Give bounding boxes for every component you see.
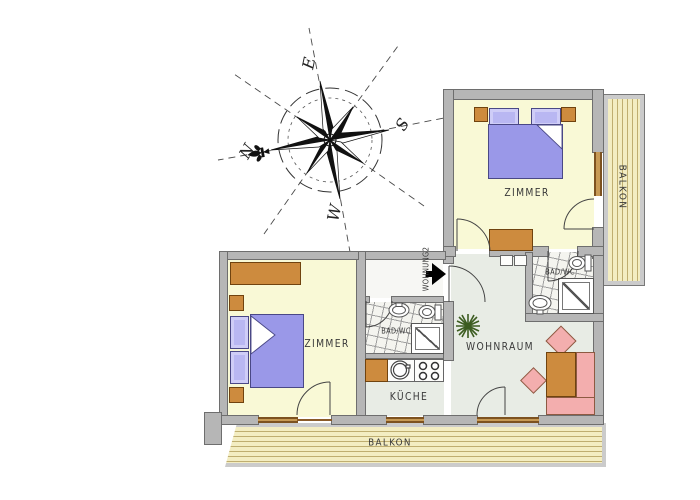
- sink-icon: [389, 303, 409, 317]
- entrance-label: WOHNUNG2: [422, 247, 431, 292]
- room-label-bathroom-lower: BAD/WC: [381, 327, 411, 336]
- bed-fold: [537, 125, 562, 149]
- kitchen-sink-icon: [391, 361, 410, 379]
- fixtures-layer: [0, 0, 700, 500]
- plant-icon: [456, 314, 480, 338]
- room-label-bedroom-upper: ZIMMER: [504, 187, 549, 199]
- sink-icon: [529, 296, 551, 315]
- room-label-kitchen: KÜCHE: [390, 391, 428, 403]
- room-label-bathroom-upper: BAD/WC: [545, 268, 575, 277]
- room-label-balcony-bottom: BALKON: [368, 438, 412, 449]
- toilet-icon: [419, 305, 441, 320]
- room-label-living-room: WOHNRAUM: [466, 341, 534, 353]
- room-label-bedroom-lower: ZIMMER: [304, 338, 349, 350]
- bed-fold: [251, 316, 275, 354]
- stove-burners-icon: [420, 363, 439, 380]
- room-label-balcony-right: BALKON: [617, 165, 628, 210]
- floor-plan: N E S W: [0, 0, 700, 500]
